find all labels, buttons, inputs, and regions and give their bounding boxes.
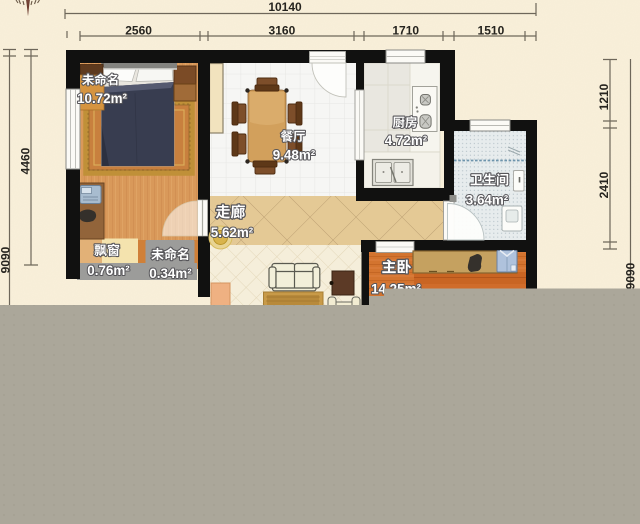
svg-text:1710: 1710 [392,24,419,38]
svg-text:10.72m²: 10.72m² [77,91,127,106]
svg-text:5.62m²: 5.62m² [211,225,254,240]
svg-text:2410: 2410 [597,171,611,198]
svg-text:9090: 9090 [624,262,638,289]
svg-text:9090: 9090 [0,246,13,273]
svg-text:3160: 3160 [269,24,296,38]
svg-text:0.34m²: 0.34m² [149,266,192,281]
svg-text:10140: 10140 [268,0,302,14]
svg-text:4460: 4460 [19,147,33,174]
svg-text:3.64m²: 3.64m² [466,193,509,208]
svg-text:0.76m²: 0.76m² [87,263,130,278]
svg-text:4.72m²: 4.72m² [385,133,428,148]
svg-text:9.48m²: 9.48m² [273,148,316,163]
svg-text:2560: 2560 [125,24,152,38]
svg-text:1510: 1510 [478,24,505,38]
svg-text:1210: 1210 [597,83,611,110]
